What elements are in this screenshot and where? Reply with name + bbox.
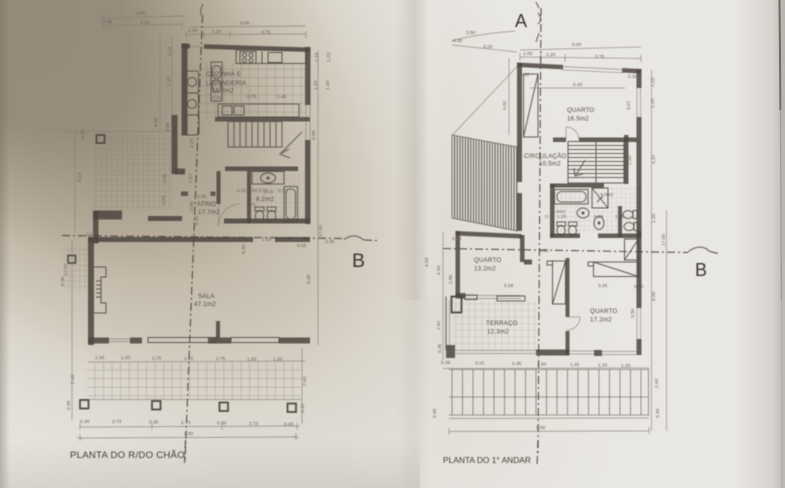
- svg-text:A: A: [515, 11, 527, 31]
- svg-text:8.2m2: 8.2m2: [256, 196, 275, 203]
- svg-text:PLANTA DO R/DO CHÃO: PLANTA DO R/DO CHÃO: [70, 450, 185, 461]
- svg-text:3.50: 3.50: [466, 30, 476, 36]
- svg-text:3.14: 3.14: [77, 172, 83, 182]
- svg-text:17.2m2: 17.2m2: [590, 317, 612, 324]
- svg-text:SALA: SALA: [198, 293, 215, 300]
- svg-text:ATRIO: ATRIO: [197, 201, 216, 208]
- svg-text:0.30: 0.30: [86, 232, 96, 238]
- svg-text:3.58: 3.58: [165, 122, 171, 132]
- svg-text:2.16: 2.16: [264, 189, 274, 195]
- svg-text:2.00: 2.00: [197, 194, 207, 200]
- svg-text:3.56: 3.56: [630, 308, 636, 318]
- svg-text:1.20: 1.20: [313, 80, 319, 90]
- svg-text:8.00: 8.00: [153, 117, 159, 127]
- svg-text:1.20: 1.20: [651, 213, 657, 223]
- svg-text:3.25: 3.25: [598, 283, 608, 289]
- svg-text:3.78: 3.78: [134, 236, 144, 242]
- svg-text:0.88: 0.88: [189, 201, 195, 211]
- svg-text:17.7m2: 17.7m2: [198, 209, 220, 216]
- svg-text:6.39: 6.39: [306, 274, 312, 284]
- svg-text:0.30: 0.30: [80, 129, 86, 139]
- svg-text:3.15: 3.15: [475, 361, 485, 367]
- svg-text:1.62: 1.62: [436, 320, 442, 330]
- svg-text:1.05: 1.05: [523, 51, 533, 57]
- svg-text:1.23: 1.23: [650, 77, 656, 87]
- svg-text:5.58: 5.58: [504, 283, 514, 289]
- svg-text:0.30: 0.30: [300, 403, 306, 413]
- svg-text:0.15: 0.15: [194, 215, 200, 225]
- svg-text:0.30: 0.30: [149, 420, 159, 426]
- svg-text:4.37: 4.37: [651, 154, 657, 164]
- svg-text:1.20: 1.20: [121, 355, 131, 361]
- svg-text:3.07: 3.07: [626, 100, 632, 110]
- svg-text:2.86: 2.86: [448, 274, 454, 284]
- svg-text:0.55: 0.55: [297, 243, 307, 249]
- svg-text:B: B: [695, 260, 707, 280]
- svg-text:1.20: 1.20: [598, 363, 608, 369]
- svg-text:2.40: 2.40: [302, 376, 308, 386]
- svg-text:1.20: 1.20: [325, 80, 331, 90]
- svg-text:1.23: 1.23: [314, 52, 320, 62]
- svg-text:1.23: 1.23: [326, 52, 332, 62]
- svg-text:4.03: 4.03: [436, 265, 442, 275]
- svg-text:16.2m2: 16.2m2: [212, 88, 234, 95]
- svg-text:13.2m2: 13.2m2: [474, 266, 496, 273]
- svg-text:0.30: 0.30: [80, 419, 90, 425]
- svg-text:0.30: 0.30: [453, 38, 463, 44]
- svg-text:0.75: 0.75: [247, 94, 257, 100]
- svg-text:0.30: 0.30: [452, 236, 462, 242]
- svg-text:3.98: 3.98: [311, 130, 317, 140]
- svg-text:2.20: 2.20: [627, 155, 633, 165]
- svg-text:4.03: 4.03: [424, 257, 430, 267]
- svg-text:12.3m2: 12.3m2: [487, 329, 509, 336]
- svg-text:0.30: 0.30: [655, 408, 661, 418]
- svg-text:10.5m2: 10.5m2: [539, 161, 561, 168]
- svg-text:16.5m2: 16.5m2: [567, 116, 589, 123]
- svg-text:0.35: 0.35: [437, 343, 443, 353]
- svg-text:3.15: 3.15: [483, 44, 493, 50]
- svg-text:47.1m2: 47.1m2: [194, 301, 216, 308]
- svg-text:3.80: 3.80: [136, 11, 146, 17]
- svg-text:1.45: 1.45: [277, 94, 287, 100]
- svg-text:1.90: 1.90: [262, 237, 272, 243]
- svg-text:1.23: 1.23: [167, 46, 173, 56]
- svg-text:2.73: 2.73: [181, 420, 191, 426]
- svg-text:QUARTO: QUARTO: [567, 107, 594, 114]
- svg-text:1.20: 1.20: [546, 52, 556, 58]
- svg-text:1.45: 1.45: [570, 362, 580, 368]
- svg-text:0.30: 0.30: [103, 19, 113, 25]
- svg-text:2.20: 2.20: [189, 138, 195, 148]
- svg-text:6.00: 6.00: [651, 291, 657, 301]
- svg-text:3.18: 3.18: [212, 95, 222, 101]
- svg-text:1.75: 1.75: [152, 356, 162, 362]
- svg-text:1.20: 1.20: [95, 355, 105, 361]
- svg-text:1.05: 1.05: [188, 28, 198, 34]
- svg-text:0.35: 0.35: [512, 361, 522, 367]
- svg-text:COZINHA E: COZINHA E: [206, 71, 241, 78]
- svg-text:1.20: 1.20: [166, 76, 172, 86]
- svg-text:6.00: 6.00: [240, 21, 250, 27]
- svg-text:CIRCULAÇÃO: CIRCULAÇÃO: [524, 153, 567, 160]
- svg-text:2.40: 2.40: [654, 378, 660, 388]
- svg-text:0.24: 0.24: [291, 237, 301, 243]
- svg-text:0.35: 0.35: [441, 360, 451, 366]
- svg-text:3.75: 3.75: [261, 30, 271, 36]
- svg-text:3.25: 3.25: [325, 239, 335, 245]
- svg-text:3.15: 3.15: [140, 20, 150, 26]
- svg-text:1.57: 1.57: [188, 173, 194, 183]
- svg-text:TERRAÇO: TERRAÇO: [486, 320, 518, 327]
- svg-text:QUARTO: QUARTO: [474, 257, 501, 264]
- svg-text:+5: +5: [250, 202, 256, 208]
- svg-text:5.40: 5.40: [241, 244, 247, 254]
- svg-text:2.40: 2.40: [70, 374, 76, 384]
- svg-text:PLANTA DO 1° ANDAR: PLANTA DO 1° ANDAR: [443, 455, 531, 465]
- svg-text:0.30: 0.30: [520, 72, 530, 78]
- svg-text:0.30: 0.30: [278, 188, 288, 194]
- svg-text:5.40: 5.40: [573, 82, 583, 88]
- svg-text:LAVANDERIA: LAVANDERIA: [206, 80, 247, 87]
- svg-text:4.0m2: 4.0m2: [600, 192, 614, 198]
- svg-text:1.25: 1.25: [557, 214, 567, 220]
- svg-text:B: B: [352, 250, 365, 272]
- svg-text:17.00: 17.00: [661, 234, 667, 246]
- svg-text:0.30: 0.30: [628, 74, 638, 80]
- svg-text:0.55: 0.55: [539, 248, 549, 254]
- svg-text:2.73: 2.73: [112, 419, 122, 425]
- svg-text:17.00: 17.00: [318, 225, 324, 237]
- svg-text:0.30: 0.30: [432, 408, 438, 418]
- svg-text:1.20: 1.20: [650, 98, 656, 108]
- svg-text:9.50: 9.50: [536, 425, 546, 431]
- svg-text:QUARTO: QUARTO: [590, 308, 617, 315]
- svg-text:4.02: 4.02: [502, 100, 508, 110]
- svg-text:0.30: 0.30: [284, 422, 294, 428]
- svg-text:1.20: 1.20: [212, 29, 222, 35]
- svg-text:0.30: 0.30: [66, 400, 72, 410]
- svg-text:1.20: 1.20: [273, 357, 283, 363]
- svg-text:6.00: 6.00: [572, 42, 582, 48]
- svg-text:3.75: 3.75: [595, 54, 605, 60]
- svg-text:0.15: 0.15: [545, 214, 555, 220]
